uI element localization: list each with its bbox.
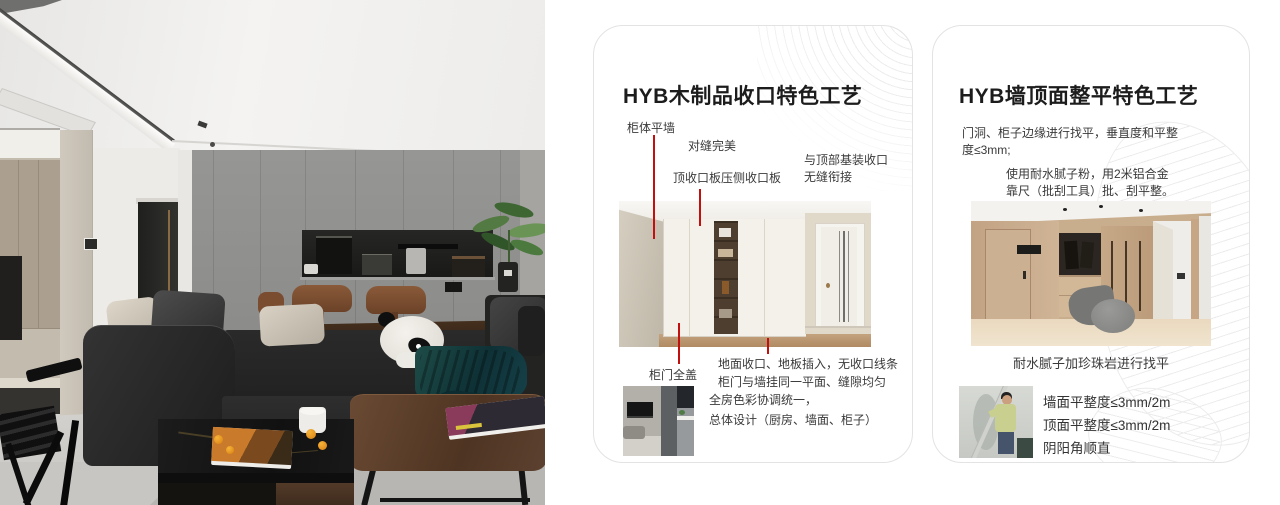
leveling-paragraph-1: 门洞、柜子边缘进行找平，垂直度和平整 度≤3mm;: [962, 125, 1178, 159]
chair-top-rail: [25, 357, 82, 382]
pillow-dark: [518, 306, 545, 356]
coffee-table-crossbar: [380, 498, 530, 502]
shelf-item: [722, 281, 729, 294]
thumb-tv: [627, 402, 653, 418]
plant-vase: [498, 262, 518, 292]
callout-line: [653, 135, 655, 239]
render-door-leaf: [821, 227, 857, 326]
hall-right-jamb: [1191, 219, 1199, 331]
ceiling-spotlight: [210, 142, 215, 147]
label-perfect-seam: 对缝完美: [688, 138, 736, 155]
worker-torso: [995, 404, 1016, 432]
plant-leaf: [471, 212, 511, 235]
worker-legs: [998, 432, 1014, 454]
switch-panel: [445, 282, 462, 292]
card-wood-finish: HYB木制品收口特色工艺 柜体平墙 对缝完美 顶收口板压侧收口板 与顶部基装收口…: [593, 25, 913, 463]
card-title: HYB木制品收口特色工艺: [623, 80, 862, 110]
door-stripe: [848, 231, 849, 322]
shelf-item: [718, 249, 733, 257]
kitchen-ceiling: [0, 130, 60, 158]
door-knob: [826, 283, 830, 288]
shelf-item: [719, 228, 731, 237]
hall-right-wall: [1199, 216, 1211, 331]
kumquat: [318, 441, 327, 450]
hall-spotlight: [1139, 209, 1143, 212]
shelf-item: [719, 309, 732, 318]
dark-object: [1017, 438, 1033, 458]
black-lounge-chair: [0, 362, 92, 505]
hanging-clothes: [1064, 241, 1079, 270]
paragraph-line: 度≤3mm;: [962, 142, 1178, 159]
door-seam: [689, 219, 690, 336]
leveling-paragraph-2: 使用耐水腻子粉，用2米铝合金 靠尺（批刮工具）批、刮平整。: [1006, 166, 1174, 200]
pillow-beige: [259, 303, 325, 346]
hall-door-handle: [1023, 271, 1026, 279]
light-switch: [84, 238, 98, 250]
espresso-machine: [406, 248, 426, 274]
counter-lip: [300, 277, 495, 280]
handle-groove: [1125, 241, 1127, 311]
label-cabinet-flush-wall: 柜体平墙: [627, 120, 675, 137]
hall-spotlight: [1099, 205, 1103, 208]
card-title: HYB墙顶面整平特色工艺: [959, 80, 1198, 110]
bean-bag: [1091, 299, 1135, 333]
cups: [304, 264, 318, 274]
glass-rack: [362, 254, 392, 275]
card-wall-leveling: HYB墙顶面整平特色工艺 门洞、柜子边缘进行找平，垂直度和平整 度≤3mm; 使…: [932, 25, 1250, 463]
summary-line: 全房色彩协调统一，: [709, 392, 817, 409]
hall-door: [985, 229, 1031, 329]
spec-bullet: 顶面平整度≤3mm/2m: [1043, 414, 1170, 434]
spec-bullet: 墙面平整度≤3mm/2m: [1043, 391, 1170, 411]
closet-opening: [1059, 233, 1101, 275]
living-room-photo: [0, 0, 545, 505]
kumquat: [214, 435, 223, 444]
label-line: 无缝衔接: [804, 169, 888, 186]
thumb-plant: [679, 410, 685, 415]
door-stripe: [839, 231, 840, 322]
label-ceiling-joint: 与顶部基装收口 无缝衔接: [804, 152, 888, 186]
dining-chair: [366, 286, 426, 314]
open-door-leaf: [1153, 221, 1173, 331]
interior-thumbnail-image: [623, 386, 694, 456]
vase-label: [504, 270, 512, 276]
summary-line: 总体设计（厨房、墙面、柜子）: [709, 412, 877, 429]
paragraph-line: 门洞、柜子边缘进行找平，垂直度和平整: [962, 125, 1178, 142]
hall-spotlight: [1063, 208, 1067, 211]
door-stripe: [843, 231, 845, 322]
kumquat: [226, 446, 234, 454]
label-door-full-cover: 柜门全盖: [649, 367, 697, 384]
label-line: 与顶部基装收口: [804, 152, 888, 169]
thumb-cabinet-column: [661, 386, 677, 456]
thermostat-panel: [1017, 245, 1041, 254]
label-line: 柜门与墙挂同一平面、缝隙均匀: [718, 373, 898, 391]
hanging-clothes: [1080, 242, 1094, 269]
plant-leaf: [509, 237, 545, 259]
cabinet-seam: [38, 160, 39, 328]
wood-drawer: [276, 483, 354, 505]
thumb-counter: [677, 416, 694, 420]
stone-edge: [158, 473, 354, 483]
thumb-floor: [623, 436, 663, 456]
hallway-photo: [971, 201, 1211, 346]
paragraph-line: 使用耐水腻子粉，用2米铝合金: [1006, 166, 1174, 183]
coffee-niche: [302, 230, 493, 277]
page: HYB木制品收口特色工艺 柜体平墙 对缝完美 顶收口板压侧收口板 与顶部基装收口…: [0, 0, 1280, 505]
handle-groove: [1139, 241, 1141, 311]
kumquat: [306, 429, 316, 439]
label-floor-joint: 地面收口、地板插入，无收口线条 柜门与墙挂同一平面、缝隙均匀: [718, 355, 898, 391]
coffee-machine: [316, 236, 352, 274]
callout-line: [678, 323, 680, 364]
spec-bullet: 阴阳角顺直: [1043, 437, 1111, 457]
worker-thumbnail-image: [959, 386, 1033, 458]
callout-line: [767, 338, 769, 354]
magazine-cover: [211, 427, 293, 465]
render-left-wall: [619, 201, 663, 347]
plant-stem: [508, 230, 510, 266]
open-shelf-unit: [714, 221, 738, 334]
mug-rim: [300, 407, 325, 415]
door-fixture: [1177, 273, 1185, 279]
door-seam: [764, 219, 765, 336]
callout-line: [699, 189, 701, 226]
cabinet-render-image: [619, 201, 871, 347]
label-line: 地面收口、地板插入，无收口线条: [718, 355, 898, 373]
label-top-trim: 顶收口板压侧收口板: [673, 170, 781, 187]
photo-caption: 耐水腻子加珍珠岩进行找平: [971, 353, 1211, 372]
coffee-appliance: [0, 256, 22, 340]
paragraph-line: 靠尺（批刮工具）批、刮平整。: [1006, 183, 1174, 200]
plant-leaf: [507, 221, 545, 240]
plant: [468, 202, 545, 294]
magazine: [211, 427, 293, 469]
thumb-sofa: [623, 426, 645, 439]
render-baseboard: [805, 326, 871, 328]
thumb-kitchen-upper: [677, 386, 694, 408]
table-shadow: [158, 483, 276, 505]
